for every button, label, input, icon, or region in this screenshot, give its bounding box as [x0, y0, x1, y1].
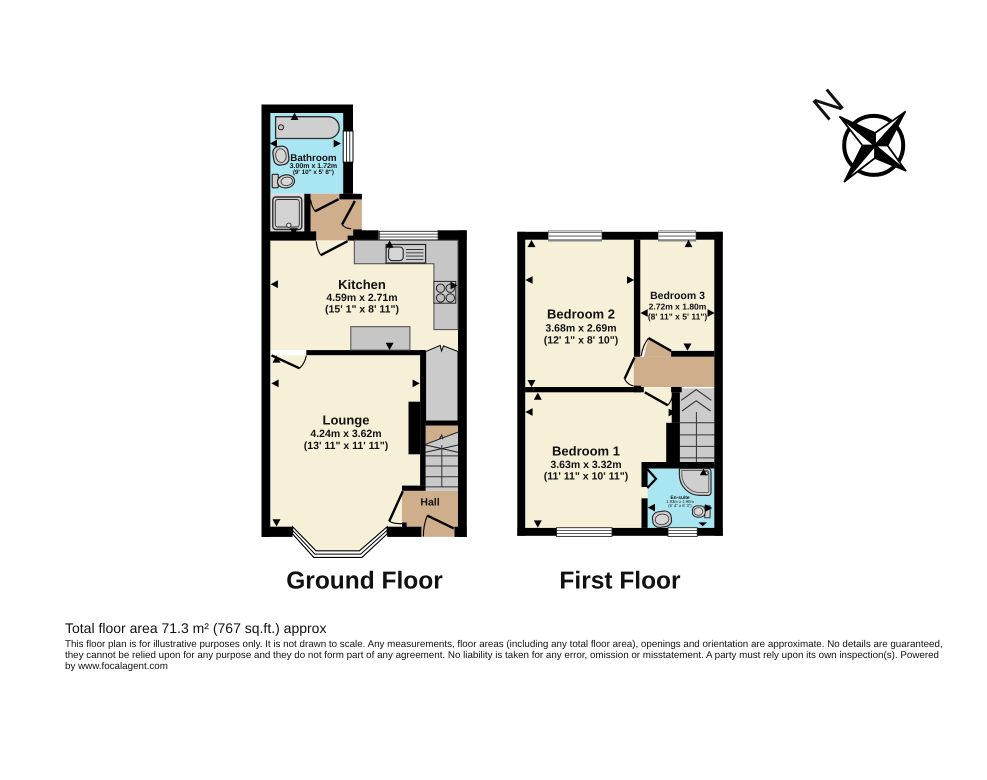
- svg-text:Total floor area 71.3 m² (767: Total floor area 71.3 m² (767 sq.ft.) ap…: [65, 620, 326, 636]
- svg-text:Kitchen: Kitchen: [338, 277, 386, 292]
- svg-text:(6' 4" x 6' 3"): (6' 4" x 6' 3"): [668, 503, 692, 508]
- svg-text:This floor plan is for illustr: This floor plan is for illustrative purp…: [65, 639, 943, 650]
- svg-text:by www.focalagent.com: by www.focalagent.com: [65, 661, 168, 672]
- svg-text:Bedroom 1: Bedroom 1: [552, 444, 620, 459]
- svg-text:(12' 1" x 8' 10"): (12' 1" x 8' 10"): [544, 335, 619, 347]
- svg-text:they cannot be relied upon for: they cannot be relied upon for any purpo…: [65, 650, 939, 661]
- svg-text:4.59m x 2.71m: 4.59m x 2.71m: [326, 292, 397, 304]
- svg-text:3.63m x 3.32m: 3.63m x 3.32m: [550, 459, 621, 471]
- svg-text:Ground Floor: Ground Floor: [286, 568, 443, 595]
- svg-text:(8' 11" x 5' 11"): (8' 11" x 5' 11"): [648, 311, 708, 321]
- svg-text:(15' 1" x 8' 11"): (15' 1" x 8' 11"): [325, 304, 399, 316]
- svg-text:Lounge: Lounge: [323, 413, 370, 428]
- svg-text:Bedroom 3: Bedroom 3: [650, 290, 705, 302]
- svg-text:(9' 10" x 5' 8"): (9' 10" x 5' 8"): [293, 169, 334, 176]
- svg-text:Bedroom 2: Bedroom 2: [547, 307, 615, 322]
- svg-text:(13' 11" x 11' 11"): (13' 11" x 11' 11"): [304, 440, 388, 452]
- svg-text:First Floor: First Floor: [559, 568, 681, 595]
- svg-text:Hall: Hall: [420, 497, 439, 509]
- svg-text:3.68m x 2.69m: 3.68m x 2.69m: [545, 323, 616, 335]
- svg-text:(11' 11" x 10' 11"): (11' 11" x 10' 11"): [544, 471, 628, 483]
- svg-text:2.72m x 1.80m: 2.72m x 1.80m: [649, 301, 707, 311]
- svg-text:4.24m x 3.62m: 4.24m x 3.62m: [310, 428, 381, 440]
